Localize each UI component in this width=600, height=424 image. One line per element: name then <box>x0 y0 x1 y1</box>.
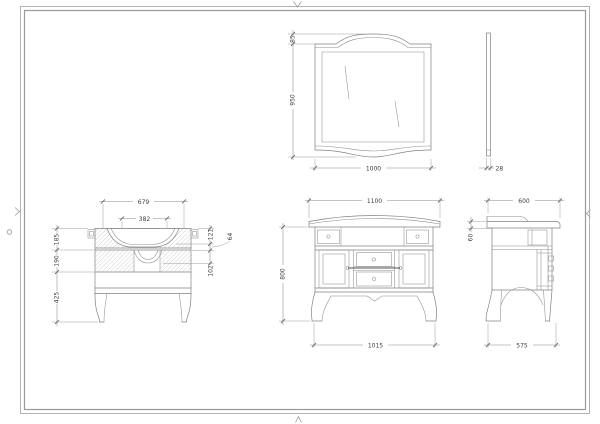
dim-counter-thickness: 60 <box>467 217 490 241</box>
dim-text-679: 679 <box>138 199 150 206</box>
top-drawer-left <box>318 230 340 244</box>
dim-vanity-base-width: 1015 <box>310 323 440 349</box>
drawer-knob <box>372 258 375 261</box>
dim-text-121: 121 <box>208 229 215 241</box>
mirror-side-view: 28 <box>479 33 503 172</box>
dim-text-1100: 1100 <box>367 198 382 205</box>
dim-text-950: 950 <box>290 94 297 106</box>
dim-vanity-depth: 600 <box>484 198 564 219</box>
dim-text-85: 85 <box>290 35 297 43</box>
dim-text-800: 800 <box>280 268 287 280</box>
dim-text-575: 575 <box>516 342 528 349</box>
mirror-reflection-mark <box>395 101 399 127</box>
dim-text-425: 425 <box>54 292 61 304</box>
dim-text-190: 190 <box>54 255 61 267</box>
center-drawer-bottom <box>357 272 392 286</box>
dim-vanity-base-depth: 575 <box>484 323 560 349</box>
drawer-knob <box>372 277 375 280</box>
top-drawer-right <box>407 230 429 244</box>
dim-basin-inner-width: 382 <box>118 216 171 229</box>
dim-text-382: 382 <box>139 216 151 223</box>
dim-text-600: 600 <box>518 198 530 205</box>
dim-text-60: 60 <box>468 234 475 242</box>
side-drawer-box <box>528 230 547 245</box>
sheet-border <box>7 2 590 423</box>
drawer-knob <box>416 235 419 238</box>
dim-mirror-thickness: 28 <box>479 158 503 172</box>
centering-mark-bottom <box>296 417 302 423</box>
mirror-front-view: 85 950 1000 <box>288 30 436 172</box>
dim-vanity-width: 1100 <box>305 198 444 219</box>
punch-mark-left <box>7 230 12 235</box>
vanity-side-view: 600 60 575 <box>467 198 564 350</box>
vanity-front-view: 1100 800 1015 <box>279 198 444 350</box>
dim-mirror-arch-rise: 85 <box>288 30 365 92</box>
center-drawer-top <box>357 253 392 267</box>
dim-text-28: 28 <box>496 165 504 172</box>
dim-text-64: 64 <box>227 233 234 241</box>
dim-section-height-chain: 185 190 425 <box>52 225 98 326</box>
centering-mark-left <box>15 208 20 216</box>
dim-text-1015: 1015 <box>368 342 383 349</box>
dim-vanity-height: 800 <box>279 223 310 325</box>
dim-mirror-width: 1000 <box>310 159 436 172</box>
door-right <box>399 250 429 288</box>
drawer-knob <box>327 235 330 238</box>
dim-basin-outer-width: 679 <box>99 199 188 228</box>
dim-text-1000: 1000 <box>366 165 381 172</box>
apron <box>331 296 417 301</box>
door-left <box>319 250 349 288</box>
vanity-section-view: 679 382 185 190 425 <box>52 199 234 326</box>
dim-text-102: 102 <box>208 265 215 277</box>
dim-text-185: 185 <box>54 234 61 246</box>
drawing-sheet: 85 950 1000 28 <box>0 0 600 424</box>
mirror-reflection-mark <box>345 66 349 99</box>
technical-drawing: 85 950 1000 28 <box>0 0 600 424</box>
